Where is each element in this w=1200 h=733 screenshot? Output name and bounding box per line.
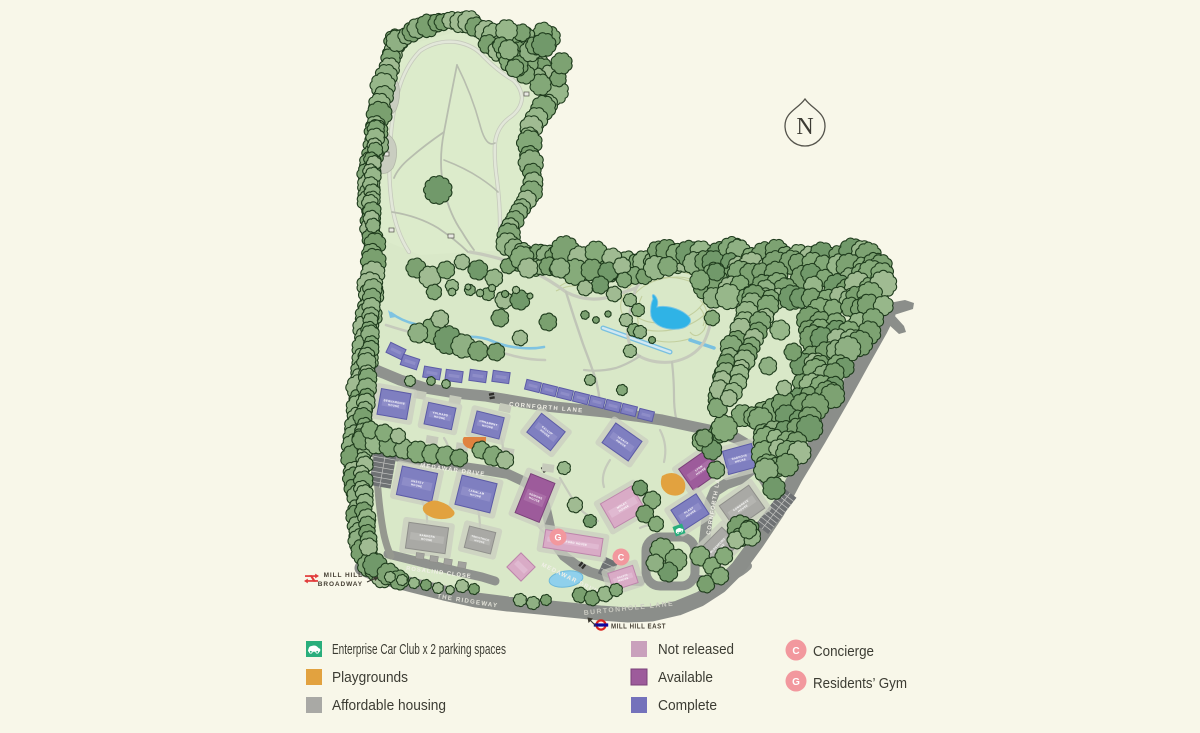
svg-text:Residents’ Gym: Residents’ Gym	[813, 676, 907, 692]
svg-text:Concierge: Concierge	[813, 644, 874, 660]
svg-text:BROADWAY: BROADWAY	[318, 581, 363, 588]
svg-text:Available: Available	[658, 670, 713, 686]
svg-text:MILL HILL EAST: MILL HILL EAST	[611, 624, 666, 631]
svg-text:Complete: Complete	[658, 698, 717, 714]
svg-text:C: C	[618, 553, 625, 563]
svg-text:C: C	[792, 646, 799, 657]
svg-text:MILL HILL: MILL HILL	[324, 572, 363, 579]
svg-text:Enterprise Car Club x 2 parkin: Enterprise Car Club x 2 parking spaces	[332, 642, 506, 658]
svg-text:G: G	[792, 677, 800, 688]
svg-text:Not released: Not released	[658, 642, 734, 658]
svg-text:G: G	[554, 533, 561, 543]
svg-text:Playgrounds: Playgrounds	[332, 670, 408, 686]
svg-text:Affordable housing: Affordable housing	[332, 698, 446, 714]
svg-text:N: N	[796, 114, 813, 140]
